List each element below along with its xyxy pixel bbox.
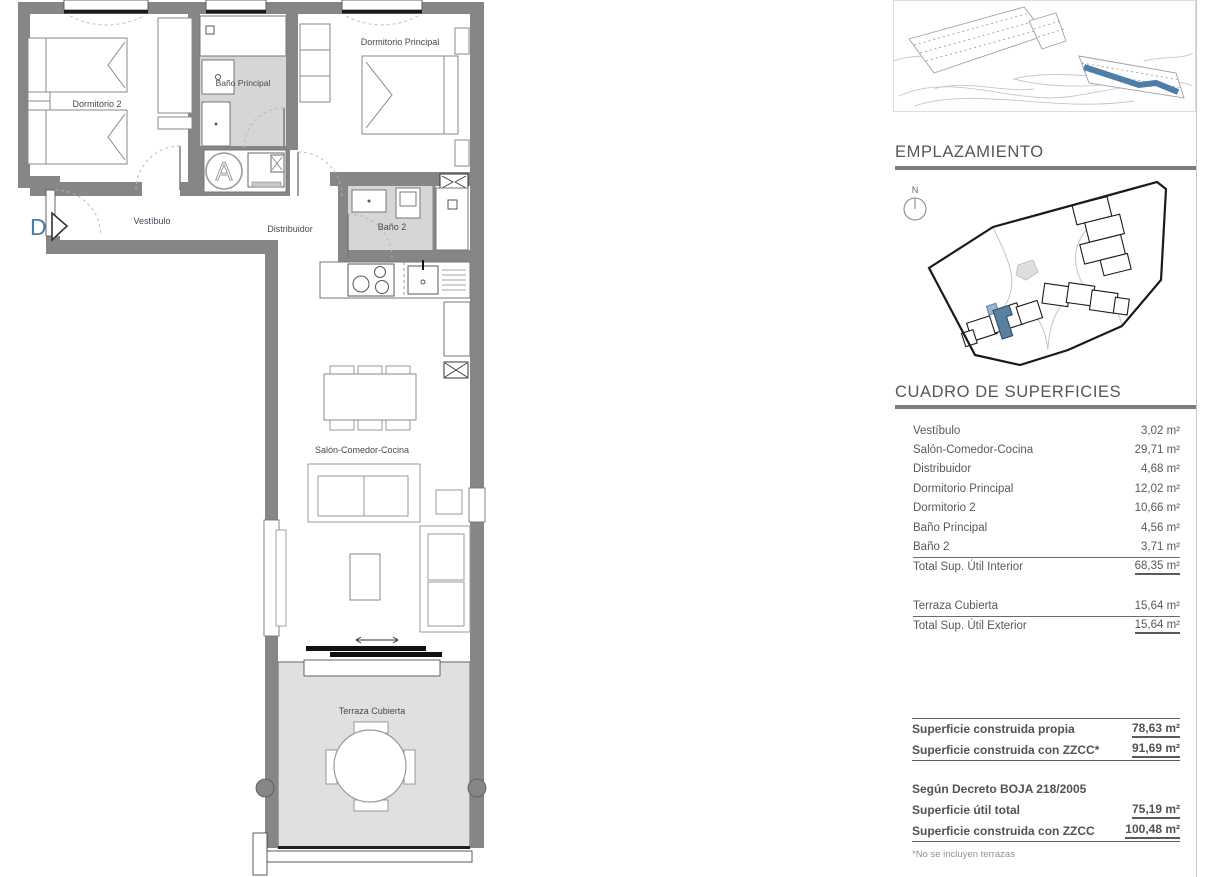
building-center: [1042, 279, 1131, 315]
cabinet: [444, 302, 470, 356]
row-label: Baño Principal: [913, 522, 987, 534]
nightstand: [455, 28, 469, 54]
site-plan: N: [898, 180, 1192, 377]
floor-plan: A: [0, 0, 500, 877]
row-value: 3,71 m²: [1141, 541, 1180, 553]
north-label: N: [912, 185, 919, 195]
chair: [330, 420, 354, 430]
table-row: Dormitorio 2 10,66 m²: [913, 499, 1180, 518]
page-edge-line: [1196, 0, 1197, 877]
emplazamiento-title-bar: [895, 166, 1196, 170]
row-value: 4,56 m²: [1141, 522, 1180, 534]
row-value: 75,19 m²: [1132, 802, 1180, 819]
row-value: 29,71 m²: [1135, 444, 1180, 456]
row-label: Dormitorio 2: [913, 502, 976, 514]
building-left: [909, 7, 1066, 73]
row-value: 15,64 m²: [1135, 600, 1180, 612]
chair: [358, 420, 382, 430]
nightstand: [455, 140, 469, 166]
site-buildings: [956, 195, 1133, 351]
row-label: Superficie construida propia: [912, 722, 1075, 736]
chair: [386, 420, 410, 430]
row-label: Terraza Cubierta: [913, 600, 998, 612]
core-marker-label: A: [216, 158, 233, 186]
dining-set: [324, 366, 416, 430]
room-label-terraza: Terraza Cubierta: [339, 706, 406, 716]
summary-row: Superficie construida con ZZCC* 91,69 m²: [912, 740, 1180, 761]
superficies-title-bar: [895, 405, 1196, 409]
room-label-bano-principal: Baño Principal: [216, 78, 271, 88]
column: [468, 779, 486, 797]
site-boundary: [929, 182, 1166, 365]
footnote: *No se incluyen terrazas: [912, 849, 1180, 860]
north-icon: N: [904, 185, 926, 220]
table-row: Dormitorio Principal 12,02 m²: [913, 479, 1180, 498]
table-row: Salón-Comedor-Cocina 29,71 m²: [913, 440, 1180, 459]
row-value: 15,64 m²: [1135, 619, 1180, 634]
terraza-row: Terraza Cubierta 15,64 m²: [913, 596, 1180, 615]
room-label-vestibulo: Vestíbulo: [133, 216, 170, 226]
entrance-arrow-icon: [52, 213, 67, 240]
superficies-title: CUADRO DE SUPERFICIES: [895, 383, 1196, 402]
decreto-group: Superficie útil total 75,19 m² Superfici…: [912, 800, 1180, 842]
parapet: [262, 851, 472, 862]
living-furniture: [308, 464, 470, 632]
unit-marker-label: D: [30, 214, 47, 240]
summary-row: Superficie construida propia 78,63 m²: [912, 719, 1180, 740]
decreto-heading: Según Decreto BOJA 218/2005: [912, 778, 1180, 800]
row-label: Superficie construida con ZZCC*: [912, 743, 1099, 757]
emplazamiento-title: EMPLAZAMIENTO: [895, 143, 1196, 162]
table-row: Baño 2 3,71 m²: [913, 537, 1180, 556]
building-render-image: [893, 0, 1196, 112]
table-spacer: [913, 577, 1180, 596]
total-interior-row: Total Sup. Útil Interior 68,35 m²: [913, 557, 1180, 577]
row-label: Total Sup. Útil Exterior: [913, 620, 1027, 632]
table-row: Baño Principal 4,56 m²: [913, 518, 1180, 537]
room-label-salon: Salón-Comedor-Cocina: [315, 445, 409, 455]
summary-row: Superficie útil total 75,19 m²: [912, 800, 1180, 821]
building-south: [956, 291, 1045, 351]
row-value: 78,63 m²: [1132, 721, 1180, 738]
row-label: Dormitorio Principal: [913, 483, 1013, 495]
dining-table: [324, 374, 416, 420]
wardrobe: [158, 18, 192, 113]
room-label-dormitorio-principal: Dormitorio Principal: [361, 37, 440, 47]
table-row: Vestíbulo 3,02 m²: [913, 421, 1180, 440]
row-label: Baño 2: [913, 541, 949, 553]
bed: [28, 110, 127, 164]
room-label-distribuidor: Distribuidor: [267, 224, 313, 234]
row-label: Superficie útil total: [912, 803, 1020, 817]
row-value: 12,02 m²: [1135, 483, 1180, 495]
kitchen: [320, 260, 470, 356]
wardrobe: [300, 24, 330, 102]
row-label: Distribuidor: [913, 463, 971, 475]
nightstand: [28, 92, 50, 101]
room-label-bano2: Baño 2: [378, 222, 407, 232]
row-label: Superficie construida con ZZCC: [912, 824, 1095, 838]
dormitorio2-furniture: [28, 18, 192, 164]
nightstand: [28, 101, 50, 110]
sliding-door: [304, 637, 442, 676]
row-value: 10,66 m²: [1135, 502, 1180, 514]
round-table: [334, 730, 406, 802]
row-label: Salón-Comedor-Cocina: [913, 444, 1033, 456]
row-value: 91,69 m²: [1132, 741, 1180, 758]
building-north: [1070, 195, 1133, 280]
building-right: [1079, 56, 1184, 98]
row-label: Total Sup. Útil Interior: [913, 561, 1023, 573]
column: [256, 779, 274, 797]
bed: [28, 38, 127, 92]
row-value: 3,02 m²: [1141, 425, 1180, 437]
total-exterior-row: Total Sup. Útil Exterior 15,64 m²: [913, 616, 1180, 636]
constructed-surface-group: Superficie construida propia 78,63 m² Su…: [912, 718, 1180, 761]
row-value: 4,68 m²: [1141, 463, 1180, 475]
closet: [200, 16, 286, 56]
room-label-dormitorio2: Dormitorio 2: [72, 99, 121, 109]
summary-row: Superficie construida con ZZCC 100,48 m²: [912, 821, 1180, 842]
row-value: 68,35 m²: [1135, 560, 1180, 575]
summary-block: Superficie construida propia 78,63 m² Su…: [912, 718, 1180, 860]
row-label: Vestíbulo: [913, 425, 960, 437]
table-row: Distribuidor 4,68 m²: [913, 460, 1180, 479]
washbasin: [202, 60, 234, 94]
surface-table: Vestíbulo 3,02 m² Salón-Comedor-Cocina 2…: [913, 421, 1180, 636]
coffee-table: [350, 554, 380, 600]
fridge: [436, 188, 468, 250]
core-block: A: [204, 150, 286, 192]
row-value: 100,48 m²: [1125, 822, 1180, 839]
render-sketch: [894, 1, 1195, 111]
side-table: [436, 490, 462, 514]
